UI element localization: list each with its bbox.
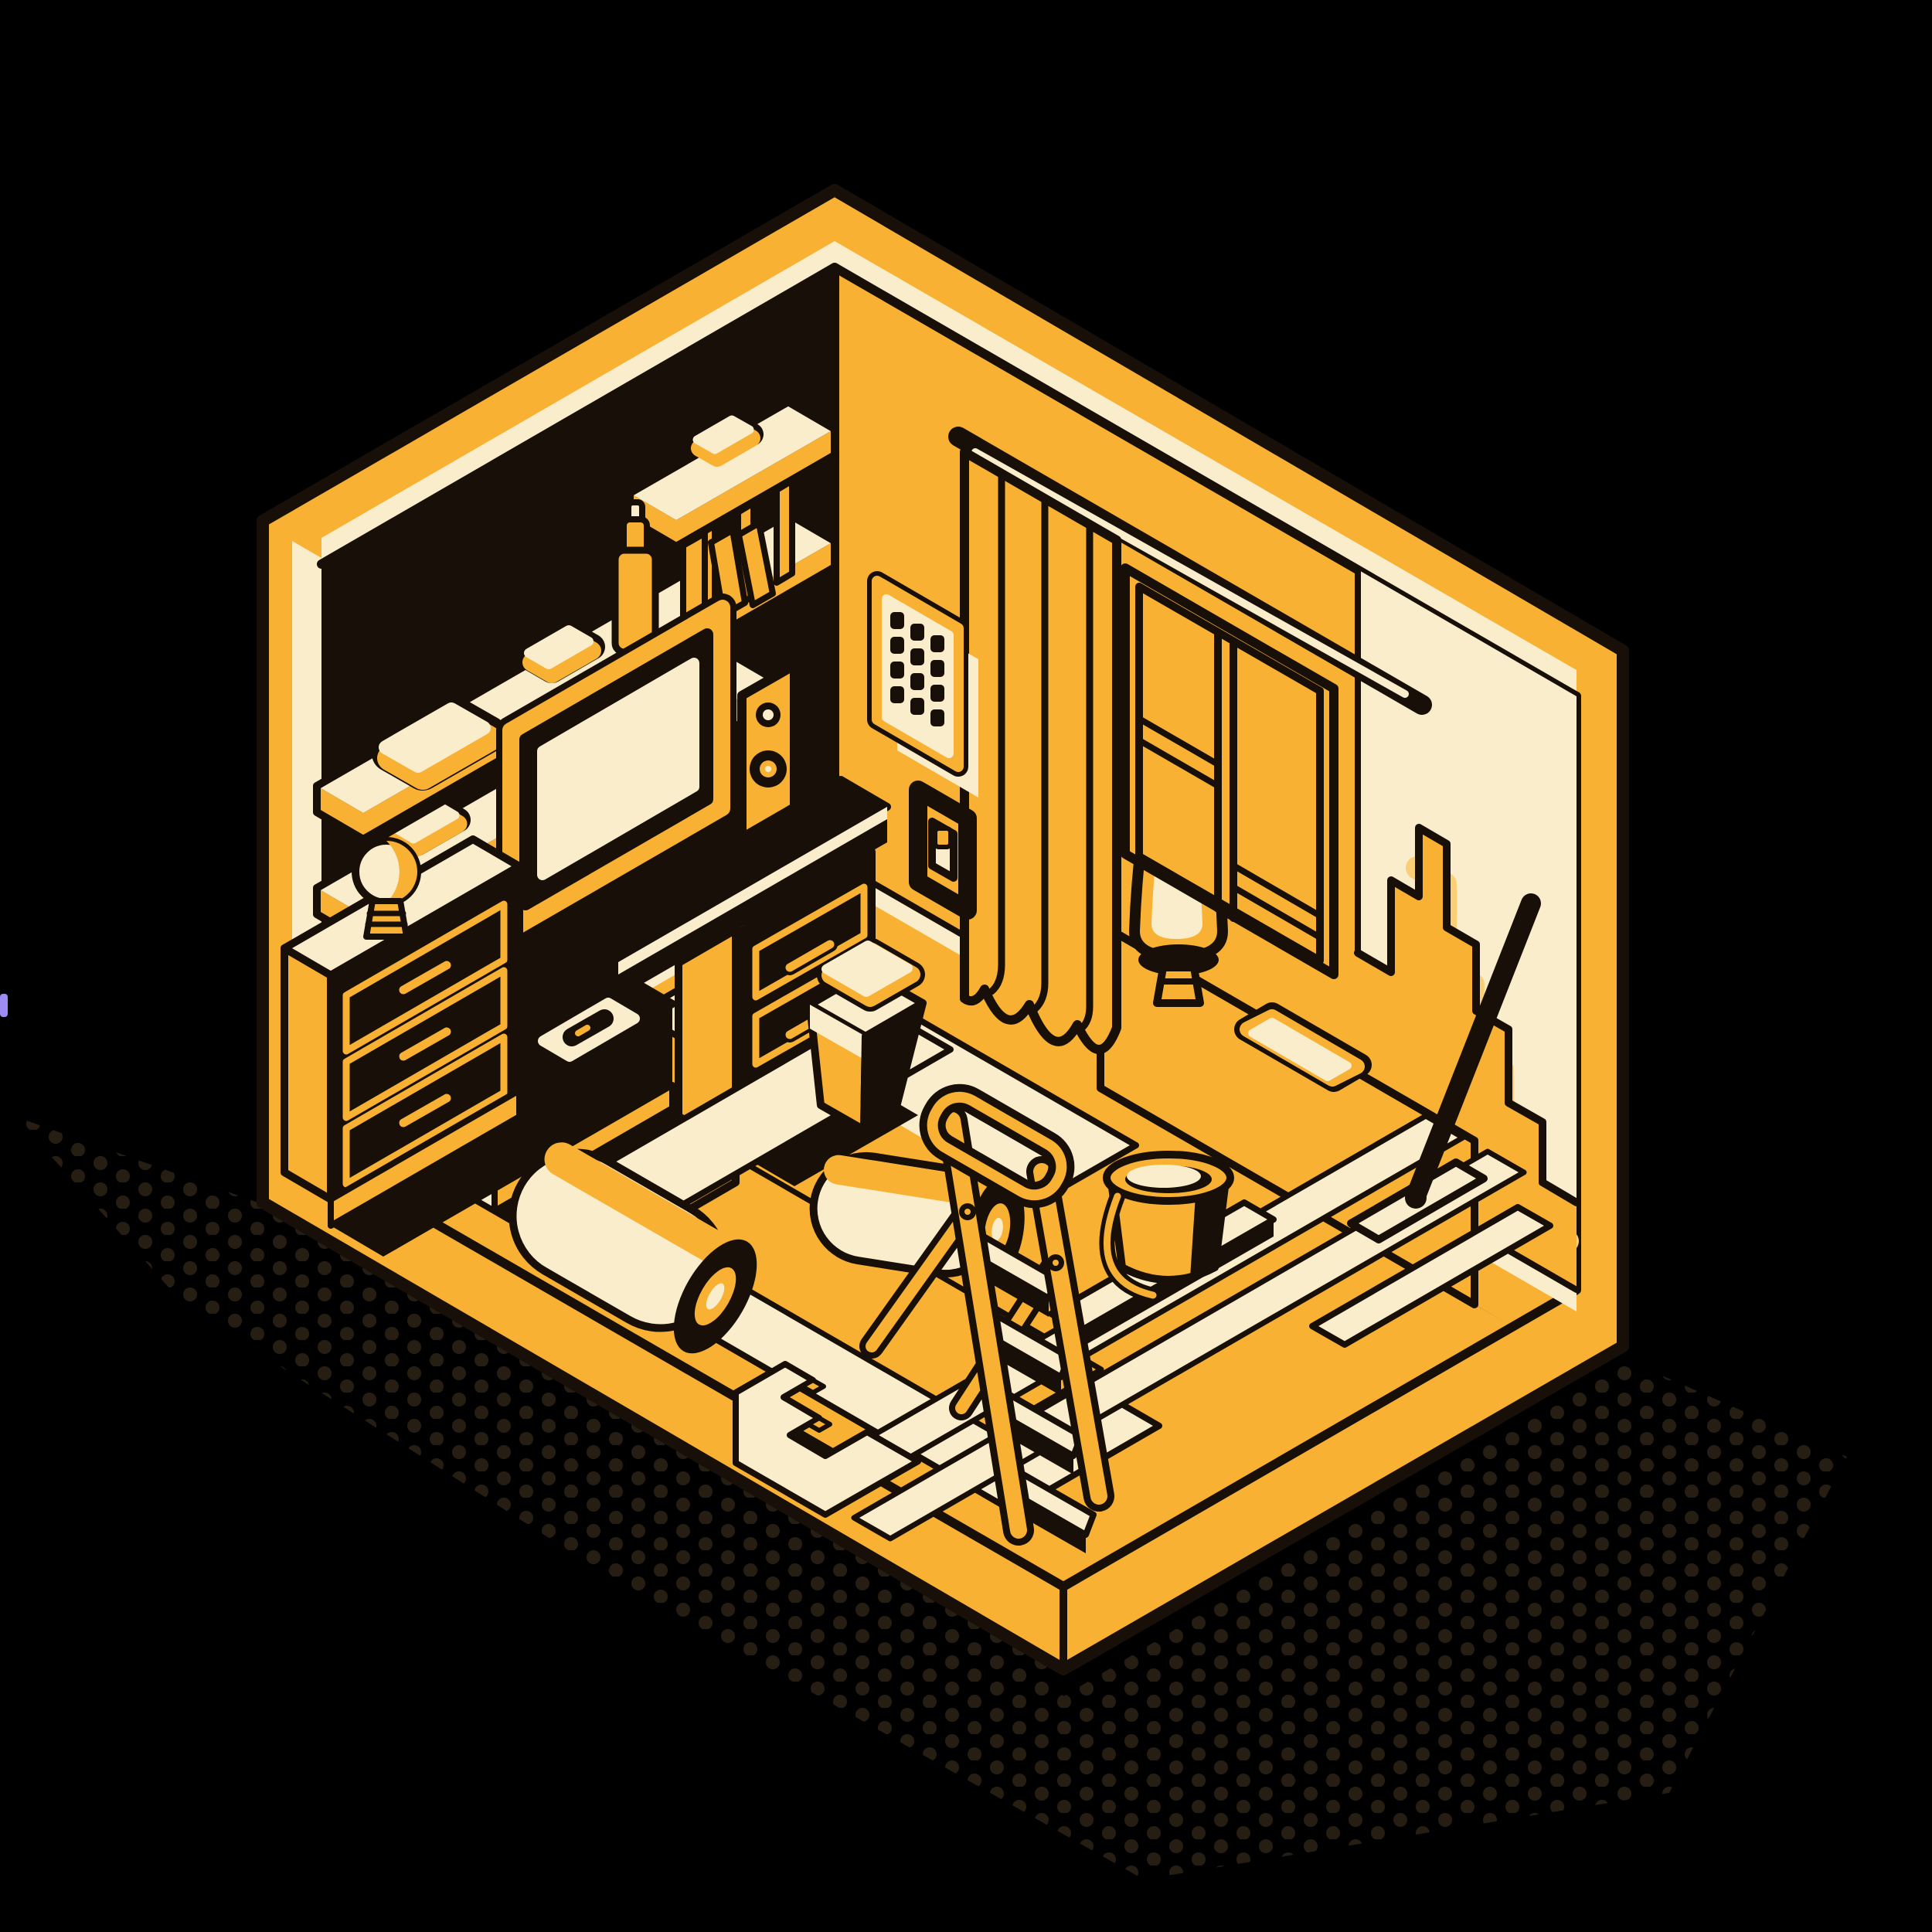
spray-can [615,502,655,652]
curtain [964,452,1117,1049]
isometric-room-svg [0,0,1932,1932]
lamp-socket [1157,968,1200,1003]
edge-artifact [0,994,8,1017]
sheet-step-edge-1 [802,1380,824,1393]
sheet-step-edge-2 [808,1418,830,1430]
dresser-left-side [284,948,331,1199]
illustration [0,0,1932,1932]
light-switch [918,790,968,910]
bulb-socket [366,901,406,937]
switch-toggle [935,828,951,847]
